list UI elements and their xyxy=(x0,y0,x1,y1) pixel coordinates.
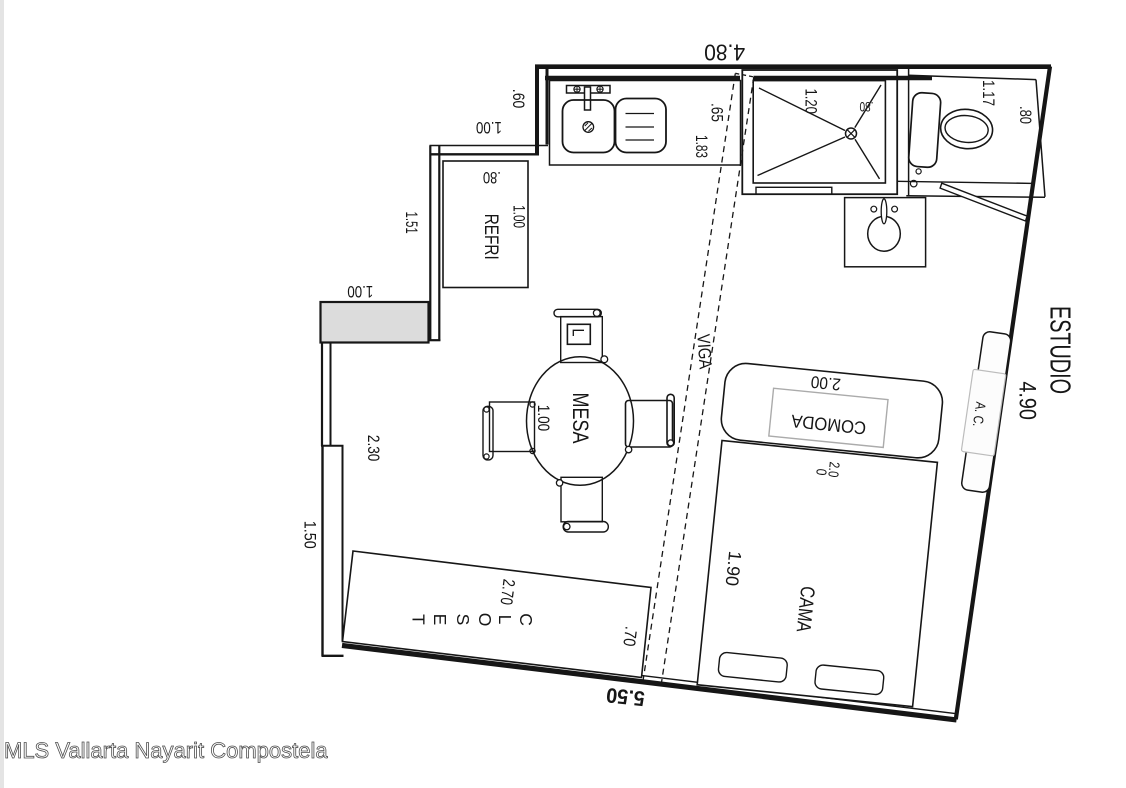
svg-text:1.00: 1.00 xyxy=(347,282,373,301)
svg-text:S: S xyxy=(453,614,473,626)
svg-text:4.90: 4.90 xyxy=(1013,381,1040,420)
svg-text:1.00: 1.00 xyxy=(534,405,553,431)
svg-text:.70: .70 xyxy=(619,625,640,647)
svg-text:1.17: 1.17 xyxy=(979,80,998,106)
svg-text:C: C xyxy=(516,613,536,626)
svg-text:MESA: MESA xyxy=(568,393,593,444)
svg-text:E: E xyxy=(430,614,450,626)
svg-text:.80: .80 xyxy=(859,99,873,115)
svg-text:2.70: 2.70 xyxy=(496,578,518,606)
svg-text:4.80: 4.80 xyxy=(704,39,745,65)
svg-text:.60: .60 xyxy=(509,89,528,109)
svg-text:ESTUDIO: ESTUDIO xyxy=(1043,306,1075,394)
svg-text:L: L xyxy=(495,615,515,625)
svg-text:T: T xyxy=(409,614,429,625)
svg-text:2.00: 2.00 xyxy=(810,372,842,394)
svg-text:1.00: 1.00 xyxy=(476,118,502,137)
svg-text:1.83: 1.83 xyxy=(692,135,711,158)
svg-text:.80: .80 xyxy=(1016,106,1035,124)
svg-text:1.00: 1.00 xyxy=(510,205,529,228)
svg-text:.65: .65 xyxy=(708,103,727,122)
svg-text:1.20: 1.20 xyxy=(802,89,821,114)
svg-text:1.51: 1.51 xyxy=(402,211,421,233)
svg-text:MLS Vallarta Nayarit Compostel: MLS Vallarta Nayarit Compostela xyxy=(4,738,328,763)
svg-text:1.90: 1.90 xyxy=(722,550,746,587)
svg-text:5.50: 5.50 xyxy=(605,683,646,710)
svg-text:2.30: 2.30 xyxy=(364,435,383,461)
svg-text:.80: .80 xyxy=(483,168,501,187)
svg-text:REFRI: REFRI xyxy=(480,214,501,260)
svg-text:O: O xyxy=(475,613,495,627)
svg-text:VIGA: VIGA xyxy=(693,333,715,369)
svg-text:1.50: 1.50 xyxy=(300,521,319,549)
